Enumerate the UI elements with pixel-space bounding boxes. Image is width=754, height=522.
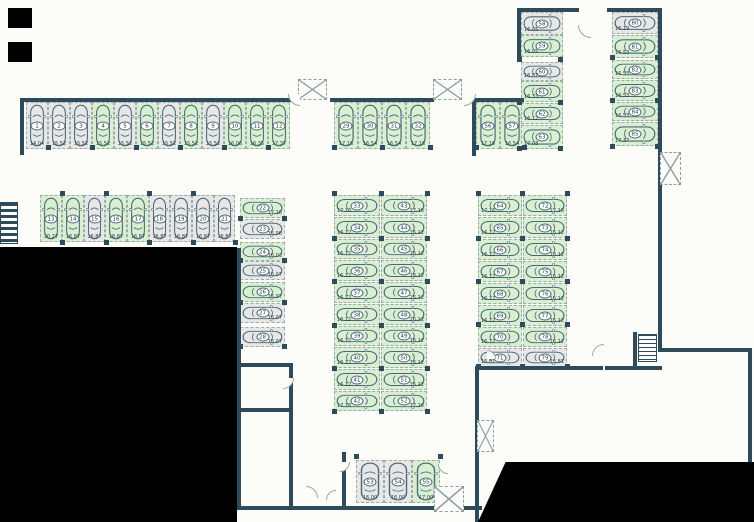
- column: [520, 279, 525, 284]
- space-area: 16.33: [524, 94, 538, 100]
- wall: [20, 98, 24, 155]
- space-number: 68: [494, 289, 507, 298]
- parking-space-61[interactable]: 6116.33: [521, 81, 563, 102]
- column: [558, 100, 563, 105]
- space-number: 57: [506, 121, 519, 130]
- space-area: 16.53: [615, 71, 629, 77]
- parking-space-39[interactable]: 3916.12: [334, 326, 380, 346]
- space-number: 29: [340, 121, 353, 130]
- space-area: 14.04: [27, 141, 47, 147]
- space-number: 19: [175, 214, 188, 223]
- space-area: 15.52: [203, 141, 223, 147]
- space-area: 16.87: [63, 234, 83, 240]
- parking-space-32[interactable]: 3217.16: [406, 102, 430, 149]
- space-area: 16.87: [215, 234, 234, 240]
- parking-space-31[interactable]: 3116.54: [382, 102, 406, 149]
- parking-space-25: 2516.07: [240, 261, 285, 280]
- space-number: 31: [388, 121, 401, 130]
- space-number: 32: [412, 121, 425, 130]
- parking-space-27: 2716.07: [240, 303, 285, 323]
- space-number: 80: [629, 19, 642, 28]
- space-area: 16.12: [410, 317, 424, 323]
- space-number: 83: [629, 86, 642, 95]
- space-area: 16.12: [337, 317, 351, 323]
- column: [522, 145, 527, 150]
- column: [379, 191, 384, 196]
- space-number: 50: [398, 353, 411, 362]
- column: [565, 279, 570, 284]
- parking-space-41[interactable]: 4116.12: [334, 369, 380, 390]
- parking-space-19: 1916.87: [170, 195, 192, 242]
- column: [354, 454, 359, 459]
- parking-space-73[interactable]: 7316.12: [523, 217, 567, 238]
- space-area: 17.16: [407, 141, 429, 147]
- column: [655, 144, 660, 149]
- parking-space-52[interactable]: 5217.16: [381, 391, 427, 411]
- column: [380, 145, 385, 150]
- shaft-x-icon: [435, 487, 463, 511]
- parking-space-38[interactable]: 3816.12: [334, 304, 380, 325]
- column: [520, 191, 525, 196]
- column: [379, 279, 384, 284]
- space-area: 17.37: [615, 138, 629, 144]
- stairs-icon: [638, 334, 657, 362]
- parking-space-81[interactable]: 8116.53: [612, 35, 658, 58]
- space-area: 17.16: [337, 403, 351, 409]
- column: [60, 240, 65, 245]
- space-area: 16.12: [550, 274, 564, 280]
- space-number: 20: [197, 214, 210, 223]
- column: [134, 145, 139, 150]
- parking-space-59[interactable]: 5916.05: [521, 35, 563, 57]
- space-number: 42: [351, 397, 364, 406]
- parking-space-3: 315.52: [70, 102, 92, 149]
- parking-space-79: 7915.81: [523, 348, 567, 367]
- parking-space-83[interactable]: 8316.53: [612, 80, 658, 101]
- space-area: 15.81: [481, 359, 495, 365]
- space-area: 15.52: [181, 141, 201, 147]
- parking-space-71: 7115.81: [478, 348, 522, 367]
- column: [425, 191, 430, 196]
- space-number: 35: [351, 245, 364, 254]
- parking-space-46[interactable]: 4616.12: [381, 260, 427, 281]
- stairs-icon: [0, 202, 18, 244]
- shaft-box: [660, 152, 681, 185]
- parking-space-72[interactable]: 7217.16: [523, 195, 567, 216]
- parking-space-4[interactable]: 415.52: [92, 102, 114, 149]
- parking-space-42[interactable]: 4217.16: [334, 391, 380, 411]
- space-area: 16.12: [337, 230, 351, 236]
- column: [332, 191, 337, 196]
- parking-space-66[interactable]: 6616.12: [478, 239, 522, 260]
- space-area: 16.87: [150, 234, 169, 240]
- wall: [517, 8, 521, 60]
- space-area: 17.16: [337, 208, 351, 214]
- space-area: 16.12: [410, 295, 424, 301]
- column: [610, 98, 615, 103]
- parking-space-58: 5816.05: [521, 12, 563, 35]
- parking-space-17[interactable]: 1716.87: [127, 195, 149, 242]
- column: [332, 409, 337, 414]
- space-area: 16.12: [410, 338, 424, 344]
- space-number: 70: [494, 333, 507, 342]
- column: [282, 300, 287, 305]
- space-number: 6: [141, 121, 154, 130]
- parking-space-18: 1816.87: [149, 195, 170, 242]
- space-area: 16.06: [225, 141, 245, 147]
- column: [565, 191, 570, 196]
- parking-space-34[interactable]: 3416.12: [334, 217, 380, 238]
- space-number: 39: [351, 332, 364, 341]
- column: [517, 100, 522, 105]
- space-area: 16.87: [171, 234, 191, 240]
- column: [238, 258, 243, 263]
- space-number: 51: [398, 375, 411, 384]
- parking-space-21: 2116.87: [214, 195, 235, 242]
- parking-space-82[interactable]: 8216.53: [612, 60, 658, 79]
- void-area: [0, 247, 237, 522]
- space-area: 16.87: [106, 234, 126, 240]
- column: [476, 236, 481, 241]
- parking-space-6[interactable]: 615.52: [136, 102, 158, 149]
- void-area: [478, 462, 754, 522]
- space-area: 16.12: [481, 230, 495, 236]
- space-area: 16.35: [247, 141, 267, 147]
- column: [517, 57, 522, 62]
- space-number: 5: [119, 121, 132, 130]
- space-area: 16.53: [615, 113, 629, 119]
- space-area: 16.07: [268, 294, 282, 300]
- column: [379, 409, 384, 414]
- column: [474, 145, 479, 150]
- space-area: 16.12: [550, 230, 564, 236]
- space-area: 16.00: [385, 495, 411, 501]
- space-number: 48: [398, 310, 411, 319]
- parking-space-29[interactable]: 2917.16: [334, 102, 358, 149]
- parking-space-28: 2816.07: [240, 327, 285, 347]
- parking-space-48[interactable]: 4816.12: [381, 304, 427, 325]
- parking-space-44[interactable]: 4416.12: [381, 217, 427, 238]
- space-area: 15.81: [550, 359, 564, 365]
- wall: [748, 352, 752, 462]
- space-area: 16.00: [268, 231, 282, 237]
- space-area: 16.12: [481, 339, 495, 345]
- space-area: 16.53: [615, 50, 629, 56]
- space-area: 16.12: [481, 296, 495, 302]
- space-number: 10: [229, 121, 242, 130]
- parking-space-11[interactable]: 1116.35: [246, 102, 268, 149]
- space-number: 11: [251, 121, 264, 130]
- column: [565, 236, 570, 241]
- column: [282, 344, 287, 349]
- space-area: 16.12: [410, 230, 424, 236]
- column: [520, 322, 525, 327]
- space-area: 15.52: [115, 141, 135, 147]
- space-area: 17.16: [410, 208, 424, 214]
- parking-space-43[interactable]: 4317.16: [381, 195, 427, 216]
- space-number: 69: [494, 311, 507, 320]
- parking-space-77[interactable]: 7716.12: [523, 305, 567, 326]
- space-area: 17.16: [410, 403, 424, 409]
- shaft-x-icon: [478, 421, 493, 451]
- space-area: 15.52: [49, 141, 69, 147]
- space-area: 17.16: [268, 210, 282, 216]
- column: [520, 364, 525, 369]
- wall: [475, 366, 603, 370]
- space-area: 16.87: [128, 234, 148, 240]
- shaft-box: [434, 486, 464, 512]
- space-area: 16.12: [410, 251, 424, 257]
- column: [425, 366, 430, 371]
- column: [60, 191, 65, 196]
- column: [655, 55, 660, 60]
- space-area: 15.52: [137, 141, 157, 147]
- space-number: 65: [494, 223, 507, 232]
- space-number: 34: [351, 223, 364, 232]
- space-area: 16.12: [410, 273, 424, 279]
- column: [147, 191, 152, 196]
- parking-space-67[interactable]: 6716.12: [478, 261, 522, 282]
- space-area: 16.12: [410, 360, 424, 366]
- space-area: 15.52: [71, 141, 91, 147]
- space-area: 16.12: [337, 360, 351, 366]
- parking-space-8[interactable]: 815.52: [180, 102, 202, 149]
- parking-space-26[interactable]: 2616.07: [240, 282, 285, 302]
- column: [46, 145, 51, 150]
- column: [476, 191, 481, 196]
- space-number: 47: [398, 288, 411, 297]
- column: [517, 146, 522, 151]
- parking-space-50[interactable]: 5016.12: [381, 347, 427, 368]
- parking-space-13[interactable]: 1320.27: [40, 195, 62, 242]
- space-number: 66: [494, 245, 507, 254]
- column: [558, 146, 563, 151]
- column: [191, 240, 196, 245]
- column: [233, 240, 238, 245]
- parking-space-36[interactable]: 3616.12: [334, 260, 380, 281]
- column: [266, 145, 271, 150]
- wall: [20, 98, 294, 102]
- space-number: 56: [482, 121, 495, 130]
- space-area: 16.87: [193, 234, 213, 240]
- space-area: 16.12: [481, 318, 495, 324]
- wall: [517, 8, 579, 12]
- column: [425, 323, 430, 328]
- parking-space-51[interactable]: 5116.12: [381, 369, 427, 390]
- space-area: 16.12: [550, 296, 564, 302]
- shaft-x-icon: [299, 80, 326, 99]
- column: [332, 279, 337, 284]
- wall: [237, 408, 293, 412]
- parking-space-45[interactable]: 4516.12: [381, 239, 427, 259]
- space-area: 16.12: [524, 116, 538, 122]
- space-area: 15.52: [159, 141, 179, 147]
- parking-space-65[interactable]: 6516.12: [478, 217, 522, 238]
- column: [610, 55, 615, 60]
- column: [178, 145, 183, 150]
- space-area: 16.07: [268, 272, 282, 278]
- space-area: 16.12: [410, 382, 424, 388]
- parking-space-47[interactable]: 4716.12: [381, 282, 427, 303]
- space-number: 30: [364, 121, 377, 130]
- parking-space-23: 2316.00: [240, 219, 285, 239]
- column: [104, 240, 109, 245]
- space-area: 16.03: [268, 253, 282, 259]
- space-area: 17.16: [335, 141, 357, 147]
- space-area: 16.12: [481, 252, 495, 258]
- space-area: 17.16: [481, 208, 495, 214]
- shaft-box: [477, 420, 494, 452]
- parking-space-1: 114.04: [26, 102, 48, 149]
- space-area: 16.12: [337, 295, 351, 301]
- column: [282, 216, 287, 221]
- shaft-x-icon: [434, 80, 461, 99]
- parking-space-30[interactable]: 3016.54: [358, 102, 382, 149]
- space-number: 7: [163, 121, 176, 130]
- wall: [607, 8, 662, 12]
- parking-space-78[interactable]: 7816.12: [523, 327, 567, 347]
- wall: [342, 452, 346, 508]
- parking-space-75[interactable]: 7516.12: [523, 261, 567, 282]
- space-area: 16.12: [550, 339, 564, 345]
- space-number: 2: [53, 121, 66, 130]
- space-area: 15.52: [93, 141, 113, 147]
- parking-space-64[interactable]: 6417.16: [478, 195, 522, 216]
- column: [238, 300, 243, 305]
- floor-plan: 114.04215.52315.52415.52515.52615.52715.…: [0, 0, 754, 522]
- space-number: 85: [629, 130, 642, 139]
- space-number: 16: [110, 214, 123, 223]
- space-number: 84: [629, 107, 642, 116]
- space-area: 17.16: [550, 208, 564, 214]
- space-number: 38: [351, 310, 364, 319]
- space-number: 82: [629, 65, 642, 74]
- column: [147, 240, 152, 245]
- parking-space-56[interactable]: 5617.16: [476, 102, 500, 149]
- space-number: 40: [351, 353, 364, 362]
- column: [610, 144, 615, 149]
- parking-space-63[interactable]: 6317.08: [521, 125, 563, 149]
- parking-space-70[interactable]: 7016.12: [478, 327, 522, 347]
- column: [191, 191, 196, 196]
- parking-space-16[interactable]: 1616.87: [105, 195, 127, 242]
- parking-space-74[interactable]: 7416.12: [523, 239, 567, 260]
- space-number: 4: [97, 121, 110, 130]
- space-number: 67: [494, 267, 507, 276]
- parking-space-22[interactable]: 2217.16: [240, 198, 285, 218]
- space-number: 37: [351, 288, 364, 297]
- parking-space-76[interactable]: 7616.12: [523, 283, 567, 304]
- space-area: 16.12: [337, 382, 351, 388]
- parking-space-53: 5316.00: [356, 460, 384, 503]
- parking-space-33[interactable]: 3317.16: [334, 195, 380, 216]
- wall: [658, 348, 752, 352]
- parking-space-49[interactable]: 4916.12: [381, 326, 427, 346]
- space-area: 16.12: [481, 274, 495, 280]
- space-number: 8: [185, 121, 198, 130]
- space-area: 16.05: [524, 49, 538, 55]
- space-number: 81: [629, 42, 642, 51]
- column: [438, 454, 443, 459]
- shaft-box: [298, 79, 327, 100]
- space-number: 43: [398, 201, 411, 210]
- space-area: 16.19: [615, 26, 629, 32]
- space-area: 17.16: [477, 141, 499, 147]
- column: [379, 323, 384, 328]
- column: [222, 145, 227, 150]
- parking-space-10[interactable]: 1016.06: [224, 102, 246, 149]
- column: [332, 323, 337, 328]
- parking-space-69[interactable]: 6916.12: [478, 305, 522, 326]
- space-area: 16.12: [337, 273, 351, 279]
- column: [332, 236, 337, 241]
- column: [282, 258, 287, 263]
- parking-space-2: 215.52: [48, 102, 70, 149]
- space-number: 41: [351, 375, 364, 384]
- space-area: 16.00: [357, 495, 383, 501]
- space-number: 17: [132, 214, 145, 223]
- parking-space-5: 515.52: [114, 102, 136, 149]
- space-number: 13: [45, 214, 58, 223]
- wall: [605, 366, 662, 370]
- parking-space-60: 6016.07: [521, 62, 563, 81]
- parking-space-68[interactable]: 6816.12: [478, 283, 522, 304]
- parking-space-40[interactable]: 4016.12: [334, 347, 380, 368]
- parking-space-12[interactable]: 1217.37: [268, 102, 290, 149]
- space-area: 16.07: [268, 339, 282, 345]
- wall: [237, 363, 293, 367]
- parking-space-14[interactable]: 1416.87: [62, 195, 84, 242]
- space-number: 53: [364, 477, 377, 486]
- parking-space-84[interactable]: 8416.53: [612, 102, 658, 121]
- space-number: 64: [494, 201, 507, 210]
- parking-space-35[interactable]: 3516.12: [334, 239, 380, 259]
- space-number: 3: [75, 121, 88, 130]
- space-number: 55: [420, 477, 433, 486]
- wall: [330, 98, 434, 102]
- space-area: 16.05: [524, 27, 538, 33]
- column: [520, 236, 525, 241]
- space-area: 16.12: [550, 252, 564, 258]
- column: [476, 364, 481, 369]
- space-number: 45: [398, 245, 411, 254]
- column: [379, 366, 384, 371]
- space-area: 16.87: [85, 234, 104, 240]
- space-number: 52: [398, 397, 411, 406]
- column: [425, 279, 430, 284]
- space-number: 33: [351, 201, 364, 210]
- space-area: 17.37: [269, 141, 289, 147]
- parking-space-62[interactable]: 6216.12: [521, 103, 563, 124]
- space-number: 36: [351, 266, 364, 275]
- parking-space-85[interactable]: 8517.37: [612, 122, 658, 146]
- space-area: 16.12: [550, 318, 564, 324]
- column: [425, 236, 430, 241]
- door-arc: [330, 452, 350, 472]
- column: [104, 191, 109, 196]
- space-area: 16.12: [337, 251, 351, 257]
- door-arc: [578, 12, 604, 38]
- parking-space-24[interactable]: 2416.03: [240, 242, 285, 261]
- column: [332, 366, 337, 371]
- shaft-box: [433, 79, 462, 100]
- column: [238, 344, 243, 349]
- space-number: 54: [392, 477, 405, 486]
- column: [332, 145, 337, 150]
- space-number: 21: [218, 214, 231, 223]
- parking-space-37[interactable]: 3716.12: [334, 282, 380, 303]
- column: [238, 216, 243, 221]
